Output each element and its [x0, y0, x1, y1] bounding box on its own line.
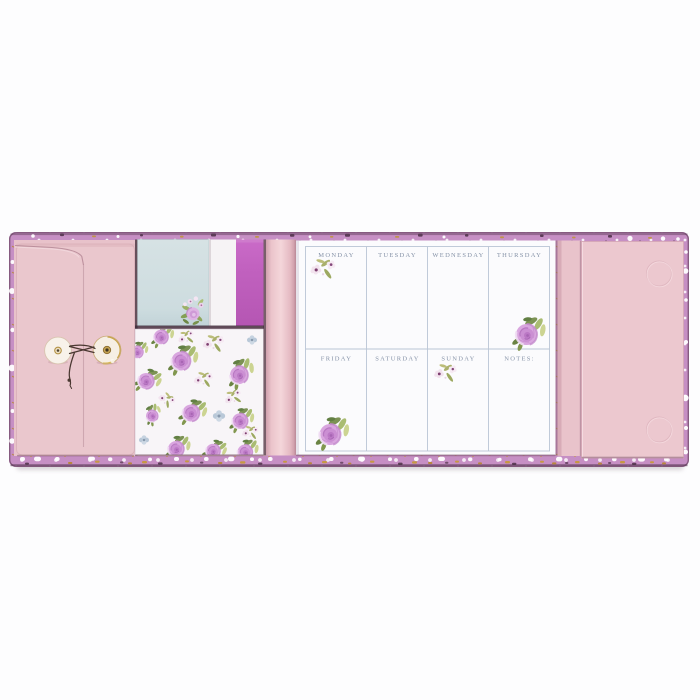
svg-text:THURSDAY: THURSDAY [497, 252, 542, 259]
svg-text:FRIDAY: FRIDAY [321, 356, 352, 363]
svg-text:TUESDAY: TUESDAY [378, 252, 417, 259]
svg-text:SATURDAY: SATURDAY [375, 356, 419, 363]
svg-text:SUNDAY: SUNDAY [441, 356, 475, 363]
svg-text:MONDAY: MONDAY [318, 252, 354, 259]
svg-text:WEDNESDAY: WEDNESDAY [432, 252, 484, 259]
svg-text:NOTES:: NOTES: [504, 356, 535, 363]
